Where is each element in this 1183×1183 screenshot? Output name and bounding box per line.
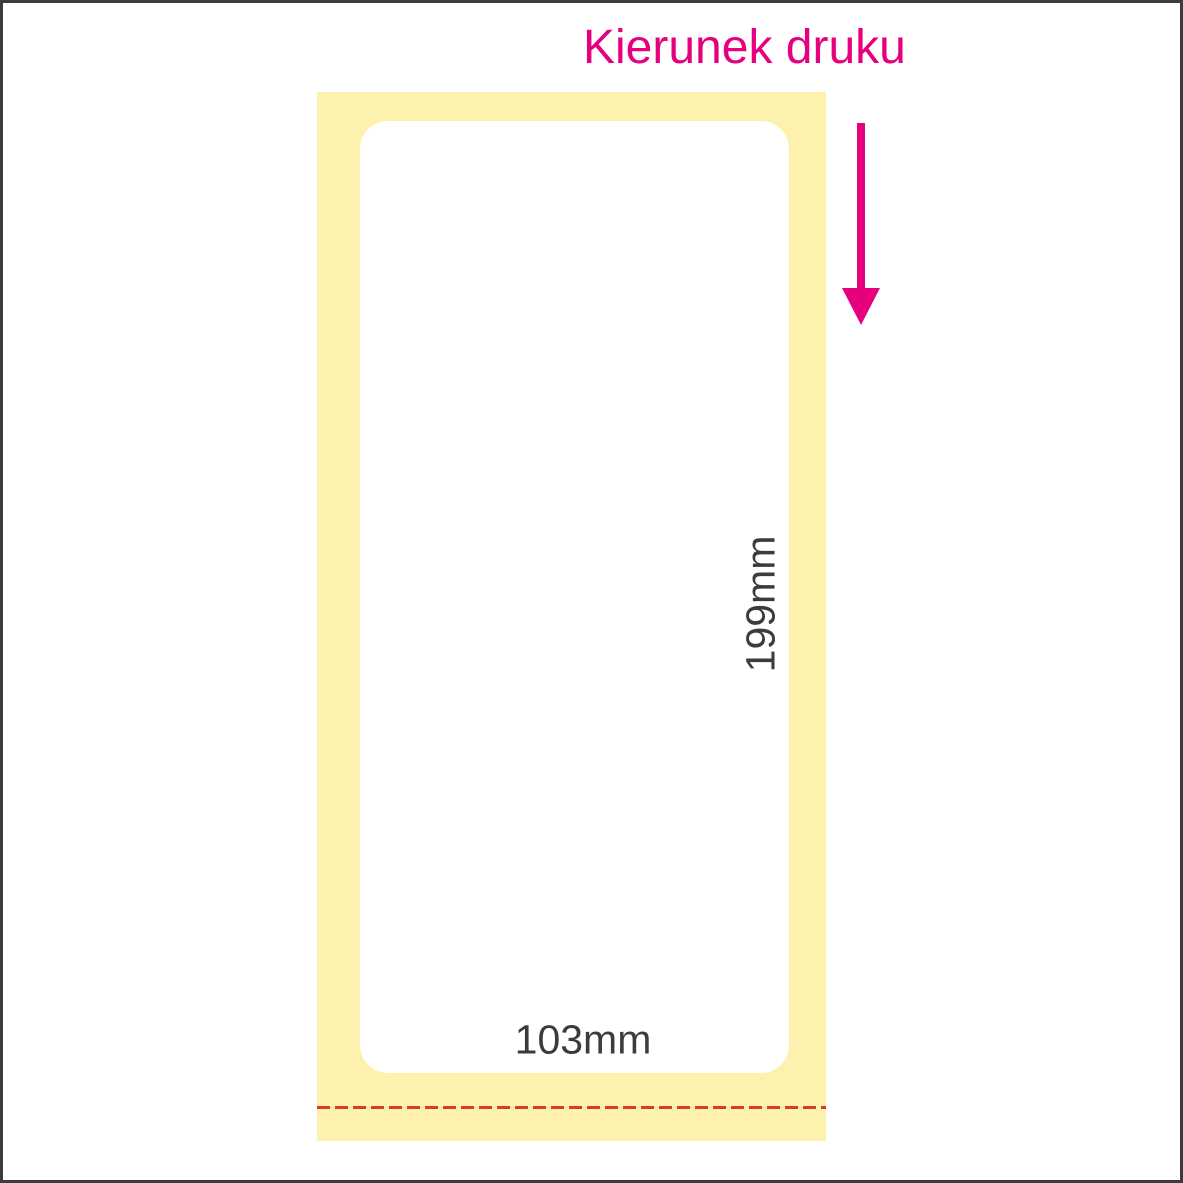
width-dimension-label: 103mm <box>515 1017 652 1064</box>
arrow-shaft <box>857 123 865 290</box>
print-direction-title: Kierunek druku <box>583 23 906 73</box>
arrow-head <box>842 288 880 325</box>
perforation-dashed-line <box>317 1106 826 1109</box>
height-dimension-label: 199mm <box>738 536 785 673</box>
label-diagram-canvas: Kierunek druku 199mm 103mm <box>0 0 1183 1183</box>
label-face <box>360 121 789 1073</box>
